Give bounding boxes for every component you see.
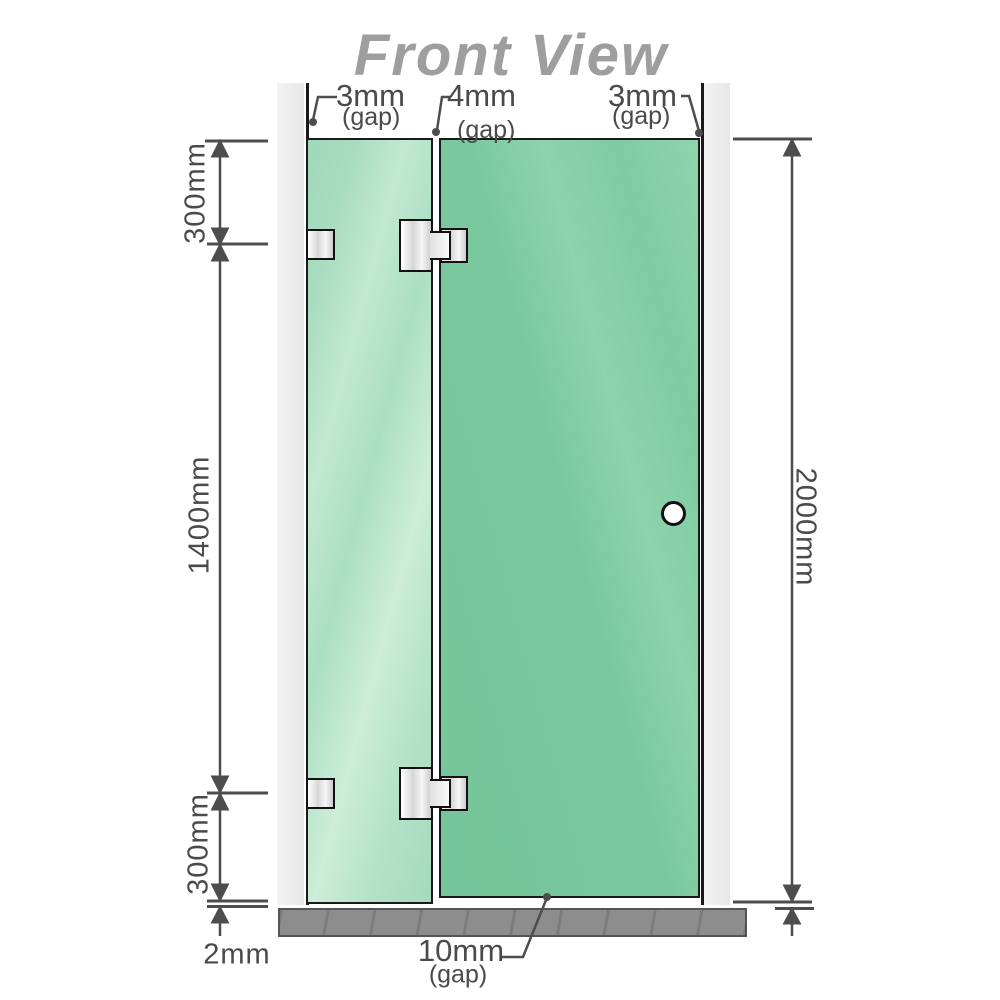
leader-dot — [543, 893, 551, 901]
arrow — [213, 229, 227, 243]
arrow — [213, 777, 227, 791]
arrow — [213, 246, 227, 260]
gap-top-middle-value: 4mm — [447, 78, 516, 114]
leader-dot — [432, 128, 440, 136]
dim-label-300-top: 300mm — [180, 142, 213, 244]
gap-bottom-qualifier: (gap) — [429, 961, 487, 990]
dim-label-2000: 2000mm — [789, 468, 822, 587]
dim-label-300-bottom: 300mm — [183, 793, 216, 895]
gap-top-left-qualifier: (gap) — [342, 103, 400, 132]
arrow — [213, 142, 227, 156]
gap-top-right-qualifier: (gap) — [612, 102, 670, 131]
gap-top-middle-qualifier: (gap) — [457, 116, 515, 145]
dim-label-1400: 1400mm — [184, 456, 217, 575]
arrow — [785, 141, 799, 155]
dim-label-2mm: 2mm — [203, 939, 270, 972]
leader-dot — [309, 118, 317, 126]
arrow — [785, 886, 799, 900]
leader-gap-top-left — [313, 97, 337, 120]
leader-gap-top-right — [681, 96, 699, 131]
front-view-diagram: Front View — [0, 0, 1000, 1000]
arrow — [213, 909, 227, 923]
leader-dot — [695, 129, 703, 137]
arrow — [785, 910, 799, 923]
leader-gap-bottom — [502, 900, 546, 957]
dimension-lines — [0, 0, 1000, 1000]
